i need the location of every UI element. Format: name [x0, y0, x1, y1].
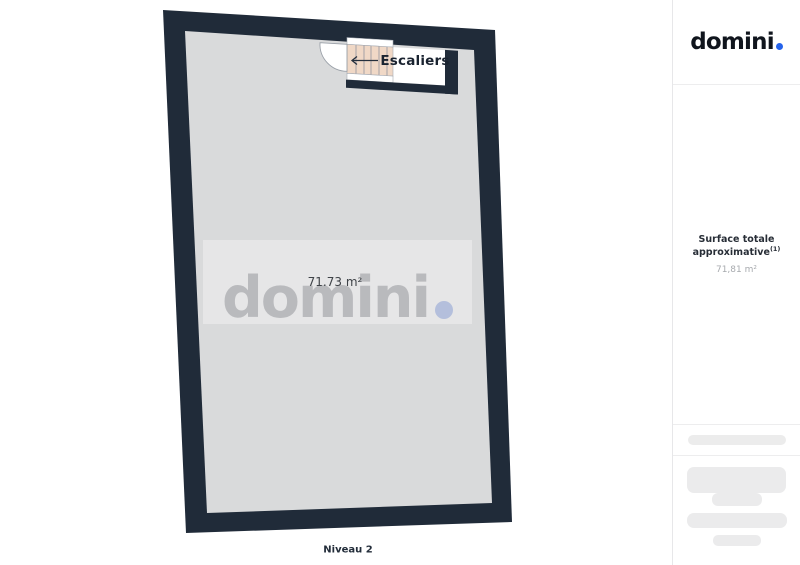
room-area-label: 71.73 m² — [308, 275, 363, 289]
redacted-row-section — [673, 425, 800, 456]
brand-dot-icon — [776, 43, 783, 50]
surface-total-value: 71,81 m² — [716, 265, 757, 275]
redacted-block — [713, 535, 761, 546]
redacted-block — [712, 493, 762, 506]
info-sidebar: domini Surface totale approximative(1) 7… — [672, 0, 800, 565]
footnote-marker: (1) — [770, 245, 780, 253]
redacted-block — [687, 513, 787, 528]
stairs-label: Escaliers — [380, 53, 449, 69]
watermark-dot-icon — [435, 301, 453, 319]
redacted-block — [687, 467, 786, 493]
level-label: Niveau 2 — [323, 545, 372, 556]
redacted-text-section — [673, 456, 800, 546]
floorplan-viewer-page: domini Escaliers 71.73 m² Niveau 2 domin… — [0, 0, 800, 565]
surface-total-label: Surface totale approximative(1) — [673, 234, 800, 258]
brand-wordmark: domini — [690, 33, 774, 51]
surface-summary-section: Surface totale approximative(1) 71,81 m² — [673, 85, 800, 425]
plan-canvas: domini Escaliers 71.73 m² Niveau 2 — [0, 0, 672, 565]
brand-logo: domini — [690, 33, 783, 51]
redacted-pill — [688, 435, 786, 445]
logo-section: domini — [673, 0, 800, 85]
